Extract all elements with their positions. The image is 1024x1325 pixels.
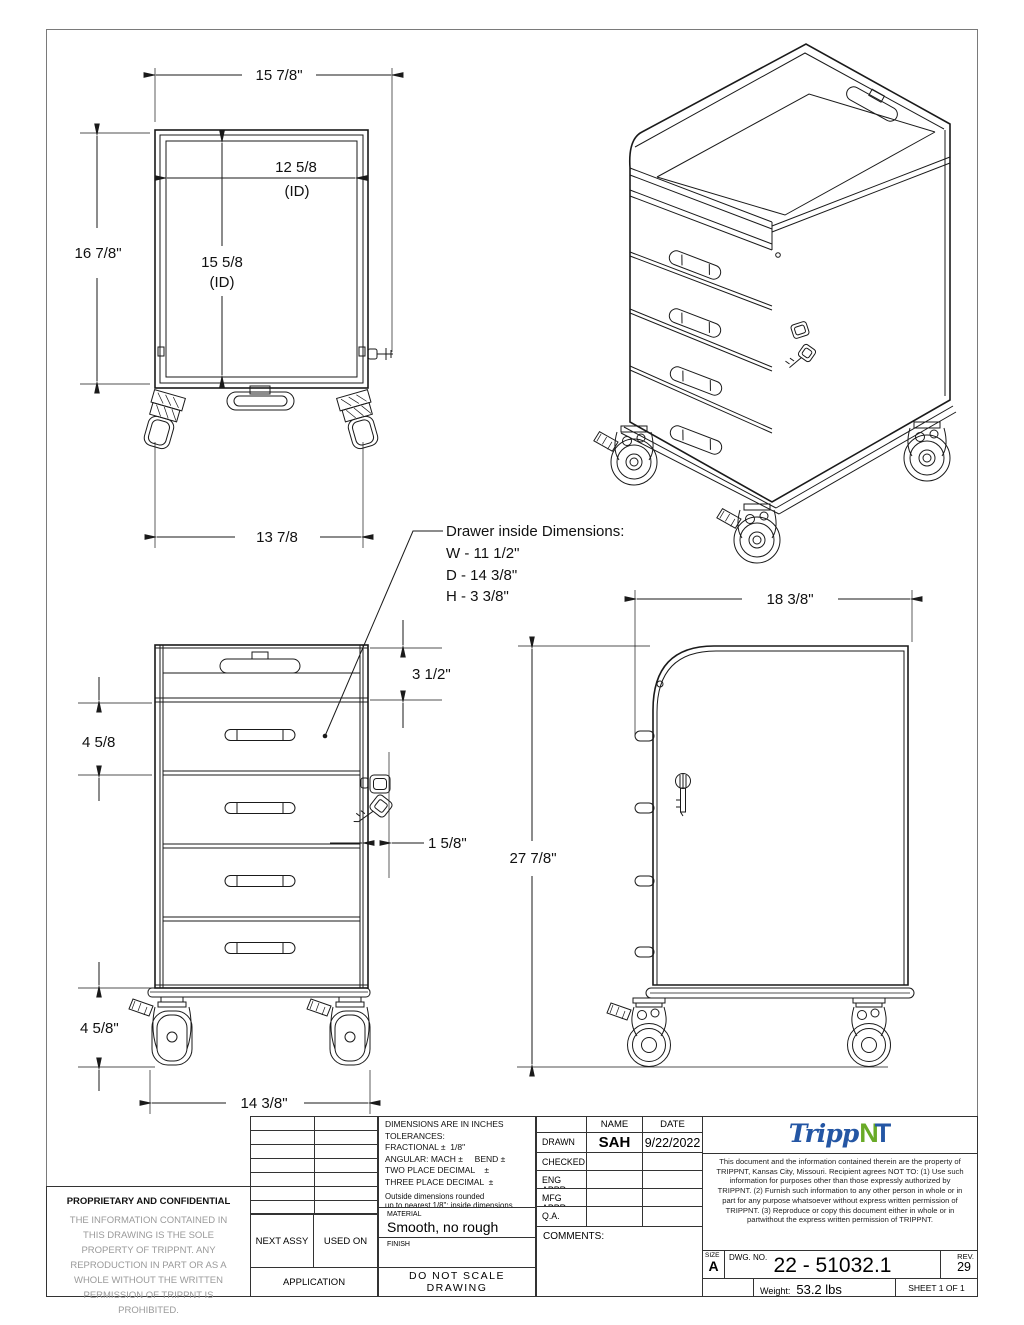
used-on-cell: USED ON [313,1214,378,1268]
drawn-label: DRAWN [536,1132,587,1153]
svg-text:(ID): (ID) [285,183,310,200]
sheet-info-cell: SHEET 1 OF 1 [895,1278,978,1297]
tolerances-block: DIMENSIONS ARE IN INCHES TOLERANCES: FRA… [378,1116,536,1208]
comments-cell: COMMENTS: [536,1226,703,1297]
dim-front-base-width: 14 3/8" [150,1070,370,1114]
checked-label: CHECKED [536,1152,587,1171]
approval-header-spacer [536,1116,587,1133]
drawn-name: SAH [586,1132,643,1153]
front-tray-handle [220,652,300,673]
finish-cell: FINISH [378,1237,536,1268]
svg-text:D - 14 3/8": D - 14 3/8" [446,567,517,584]
dim-side-height: 27 7/8" [509,646,888,1067]
iso-key [784,340,817,375]
back-view: 15 7/8" 16 7/8" 12 5/8 (ID) 15 5/8 (ID) [74,67,393,548]
dim-front-drawer-pitch: 4 5/8 [78,677,152,801]
hinge-mark-right [359,347,365,356]
dim-back-inner-width: 12 5/8 (ID) [167,159,355,200]
dwg-no-cell: DWG. NO. 22 - 51032.1 [724,1250,941,1279]
svg-text:15 7/8": 15 7/8" [255,67,302,84]
side-caster-rear [848,998,891,1067]
back-lock-stub [368,348,393,360]
svg-text:15 5/8: 15 5/8 [201,254,243,271]
isometric-view [593,44,956,563]
svg-text:(ID): (ID) [210,274,235,291]
proprietary-block: PROPRIETARY AND CONFIDENTIAL THE INFORMA… [46,1186,251,1297]
svg-text:16 7/8": 16 7/8" [74,245,121,262]
proprietary-title: PROPRIETARY AND CONFIDENTIAL [47,1196,250,1207]
application-cell: APPLICATION [250,1267,378,1297]
svg-text:12 5/8: 12 5/8 [275,159,317,176]
svg-text:3 1/2": 3 1/2" [412,666,451,683]
drawing-sheet: 15 7/8" 16 7/8" 12 5/8 (ID) 15 5/8 (ID) [0,0,1024,1325]
svg-text:H - 3 3/8": H - 3 3/8" [446,588,509,605]
qa-label: Q.A. [536,1206,587,1227]
front-brake-left [129,999,153,1016]
front-key [351,790,393,835]
front-lock [361,775,390,793]
dim-side-depth: 18 3/8" [635,590,912,736]
front-brake-right [307,999,331,1016]
do-not-scale-cell: DO NOT SCALE DRAWING [378,1267,536,1297]
caster-back-right [337,390,383,452]
iso-drawer-handle-2 [667,307,722,339]
drawer-handle-4 [225,943,295,954]
svg-text:4 5/8": 4 5/8" [80,1020,119,1037]
dim-back-width: 15 7/8" [155,67,392,352]
front-caster-right [330,997,370,1065]
iso-caster-front-left [611,426,657,485]
side-handle-stubs [635,731,654,957]
svg-text:18 3/8": 18 3/8" [766,591,813,608]
size-cell: SIZE A [702,1250,725,1279]
iso-drawer-handle-4 [668,424,723,456]
caster-back-left [139,390,185,452]
revision-grid [250,1116,378,1214]
dim-back-base-width: 13 7/8 [155,442,363,548]
date-header: DATE [642,1116,703,1133]
iso-lock [790,321,810,339]
side-screw-dot [776,253,781,258]
svg-text:27 7/8": 27 7/8" [509,850,556,867]
front-caster-left [152,997,192,1065]
drawer-handle-2 [225,803,295,814]
dim-back-height: 16 7/8" [74,133,150,384]
svg-text:W - 11 1/2": W - 11 1/2" [446,545,519,562]
drawer-handle-3 [225,876,295,887]
eng-appr-label: ENG APPR. [536,1170,587,1189]
drawer-handle-1 [225,730,295,741]
next-assy-cell: NEXT ASSY [250,1214,314,1268]
trippnt-logo: TrippNT [702,1116,978,1154]
dim-front-tray-height: 3 1/2" [370,620,451,728]
hinge-mark-left [158,347,164,356]
side-brake [607,1003,631,1020]
weight-cell: Weight:53.2 lbs [753,1278,896,1297]
front-view: 3 1/2" 4 5/8 1 5/8" 4 5/8" [78,620,467,1114]
iso-caster-rear-right [904,422,950,481]
back-handle [227,386,294,410]
legal-notice: This document and the information contai… [702,1153,978,1251]
rev-cell: REV. 29 [940,1250,978,1279]
svg-text:1 5/8": 1 5/8" [428,835,467,852]
front-base-rail [148,988,370,997]
dim-front-caster-height: 4 5/8" [78,962,155,1091]
material-cell: MATERIAL Smooth, no rough edges [378,1207,536,1238]
mfg-appr-label: MFG APPR. [536,1188,587,1207]
drawing-area: 15 7/8" 16 7/8" 12 5/8 (ID) 15 5/8 (ID) [0,0,1024,1115]
proprietary-body: THE INFORMATION CONTAINED IN THIS DRAWIN… [47,1207,250,1318]
iso-caster-front-right [734,504,780,563]
svg-text:4 5/8: 4 5/8 [82,734,115,751]
side-key [676,774,691,817]
side-caster-front [628,998,671,1067]
side-view: 18 3/8" 27 7/8" [509,590,914,1067]
iso-drawer-handle-3 [668,365,723,397]
name-header: NAME [586,1116,643,1133]
svg-text:13 7/8: 13 7/8 [256,529,298,546]
weight-value: 53.2 lbs [796,1282,842,1297]
svg-text:Drawer inside Dimensions:: Drawer inside Dimensions: [446,523,624,540]
drawn-date: 9/22/2022 [642,1132,703,1153]
svg-text:14 3/8": 14 3/8" [240,1095,287,1112]
